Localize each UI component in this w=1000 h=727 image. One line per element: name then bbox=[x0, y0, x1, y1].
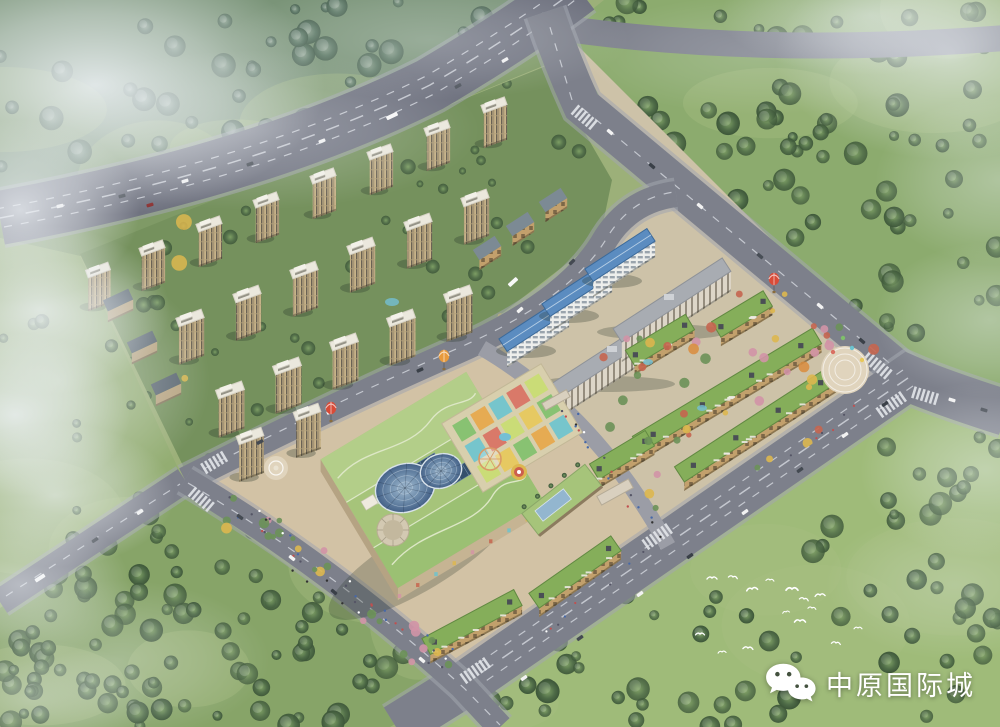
aerial-rendering: 中原国际城 bbox=[0, 0, 1000, 727]
scene-svg bbox=[0, 0, 1000, 727]
